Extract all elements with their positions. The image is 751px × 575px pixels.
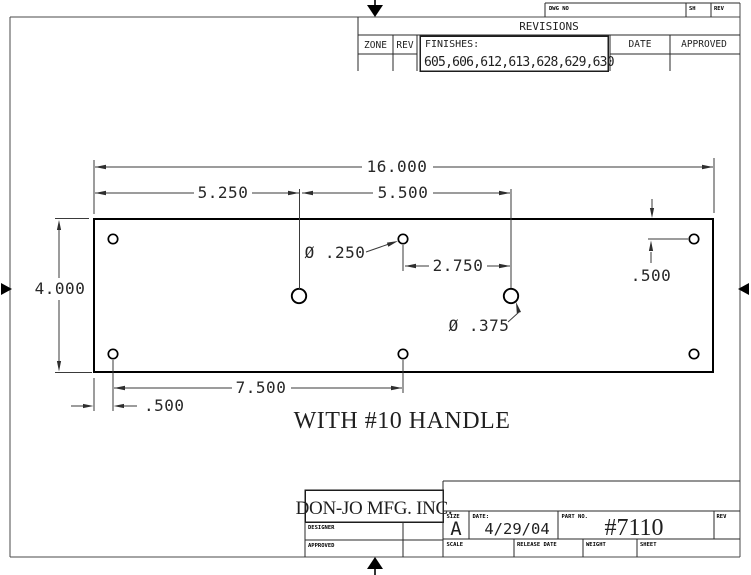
- sh-label: SH: [689, 6, 696, 12]
- dim-5250-value: 5.250: [198, 183, 249, 202]
- drawing-sheet: DWG NO SH REV REVISIONS ZONE REV DATE AP…: [0, 0, 751, 575]
- pull-hole-left: [292, 289, 306, 303]
- dwg-number-strip: DWG NO SH REV: [545, 3, 740, 17]
- scale-label: SCALE: [447, 542, 464, 548]
- callout-small-hole-diameter: Ø .250: [305, 241, 398, 262]
- finishes-label: FINISHES:: [425, 39, 479, 50]
- rev-label-strip: REV: [714, 6, 725, 12]
- approved-column-header: APPROVED: [681, 39, 727, 50]
- dim-500-bottom-value: .500: [144, 396, 185, 415]
- dim-top-hole-inset: .500: [631, 199, 688, 285]
- sheet-label: SHEET: [640, 542, 657, 548]
- dim-overall-width-value: 16.000: [367, 157, 428, 176]
- dim-plate-height: 4.000: [35, 219, 92, 373]
- dim-bottom-hole-inset: .500: [71, 378, 185, 415]
- part-no-label: PART NO.: [562, 514, 589, 520]
- drawing-note: WITH #10 HANDLE: [294, 408, 511, 434]
- release-date-label: RELEASE DATE: [517, 542, 557, 548]
- dim-left-edge-to-pull-hole: 5.250: [95, 183, 299, 202]
- weight-label: WEIGHT: [586, 542, 607, 548]
- rev-column-header: REV: [396, 40, 413, 51]
- company-name: DON-JO MFG. INC.: [296, 498, 453, 519]
- large-hole-diameter-value: Ø .375: [449, 316, 510, 335]
- approved-label: APPROVED: [308, 543, 335, 549]
- hole-bottom-left: [108, 349, 117, 358]
- border-center-mark-bottom-icon: [367, 557, 383, 575]
- revisions-title: REVISIONS: [519, 20, 579, 33]
- hole-bottom-right: [689, 349, 698, 358]
- border-center-mark-top-icon: [367, 0, 383, 17]
- zone-column-header: ZONE: [364, 40, 387, 51]
- dim-pull-to-top-hole: 2.750: [403, 245, 510, 275]
- date-value: 4/29/04: [484, 520, 549, 538]
- revisions-table: REVISIONS ZONE REV DATE APPROVED FINISHE…: [358, 17, 740, 71]
- dim-2750-value: 2.750: [433, 256, 484, 275]
- pull-hole-right: [504, 289, 518, 303]
- dim-7500-value: 7.500: [236, 378, 287, 397]
- hole-top-left: [108, 234, 117, 243]
- dim-500-right-value: .500: [631, 266, 672, 285]
- title-block: DON-JO MFG. INC. DESIGNER APPROVED SIZE …: [296, 481, 740, 557]
- small-hole-diameter-value: Ø .250: [305, 243, 366, 262]
- hole-top-right: [689, 234, 698, 243]
- size-value: A: [450, 518, 462, 540]
- designer-label: DESIGNER: [308, 525, 335, 531]
- callout-large-hole-diameter: Ø .375: [449, 302, 521, 335]
- rev-label-titleblock: REV: [717, 514, 728, 520]
- date-column-header: DATE: [629, 39, 652, 50]
- push-plate-outline: [94, 219, 713, 372]
- finishes-values: 605,606,612,613,628,629,630: [424, 55, 614, 70]
- hole-top-middle: [398, 234, 407, 243]
- hole-bottom-middle: [398, 349, 407, 358]
- engineering-drawing-canvas: DWG NO SH REV REVISIONS ZONE REV DATE AP…: [0, 0, 751, 575]
- dwg-no-label: DWG NO: [549, 6, 570, 12]
- part-no-value: #7110: [604, 515, 663, 541]
- dim-4000-value: 4.000: [35, 279, 86, 298]
- dim-5500-value: 5.500: [378, 183, 429, 202]
